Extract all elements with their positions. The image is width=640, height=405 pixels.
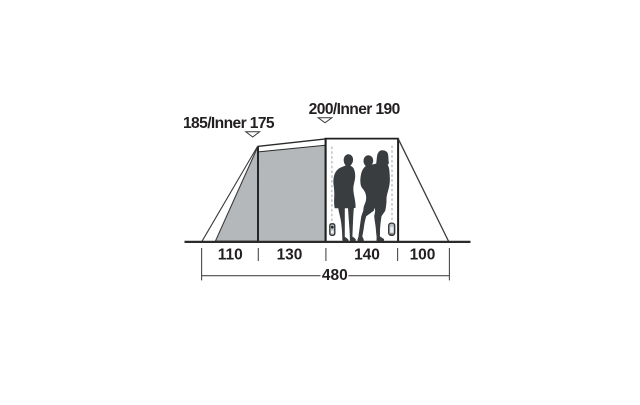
- svg-text:185/Inner 175: 185/Inner 175: [183, 115, 275, 132]
- svg-text:100: 100: [410, 247, 436, 264]
- svg-text:130: 130: [277, 247, 303, 264]
- svg-text:110: 110: [218, 247, 243, 264]
- svg-text:480: 480: [322, 267, 348, 284]
- svg-text:200/Inner 190: 200/Inner 190: [309, 101, 401, 118]
- svg-text:140: 140: [354, 247, 380, 264]
